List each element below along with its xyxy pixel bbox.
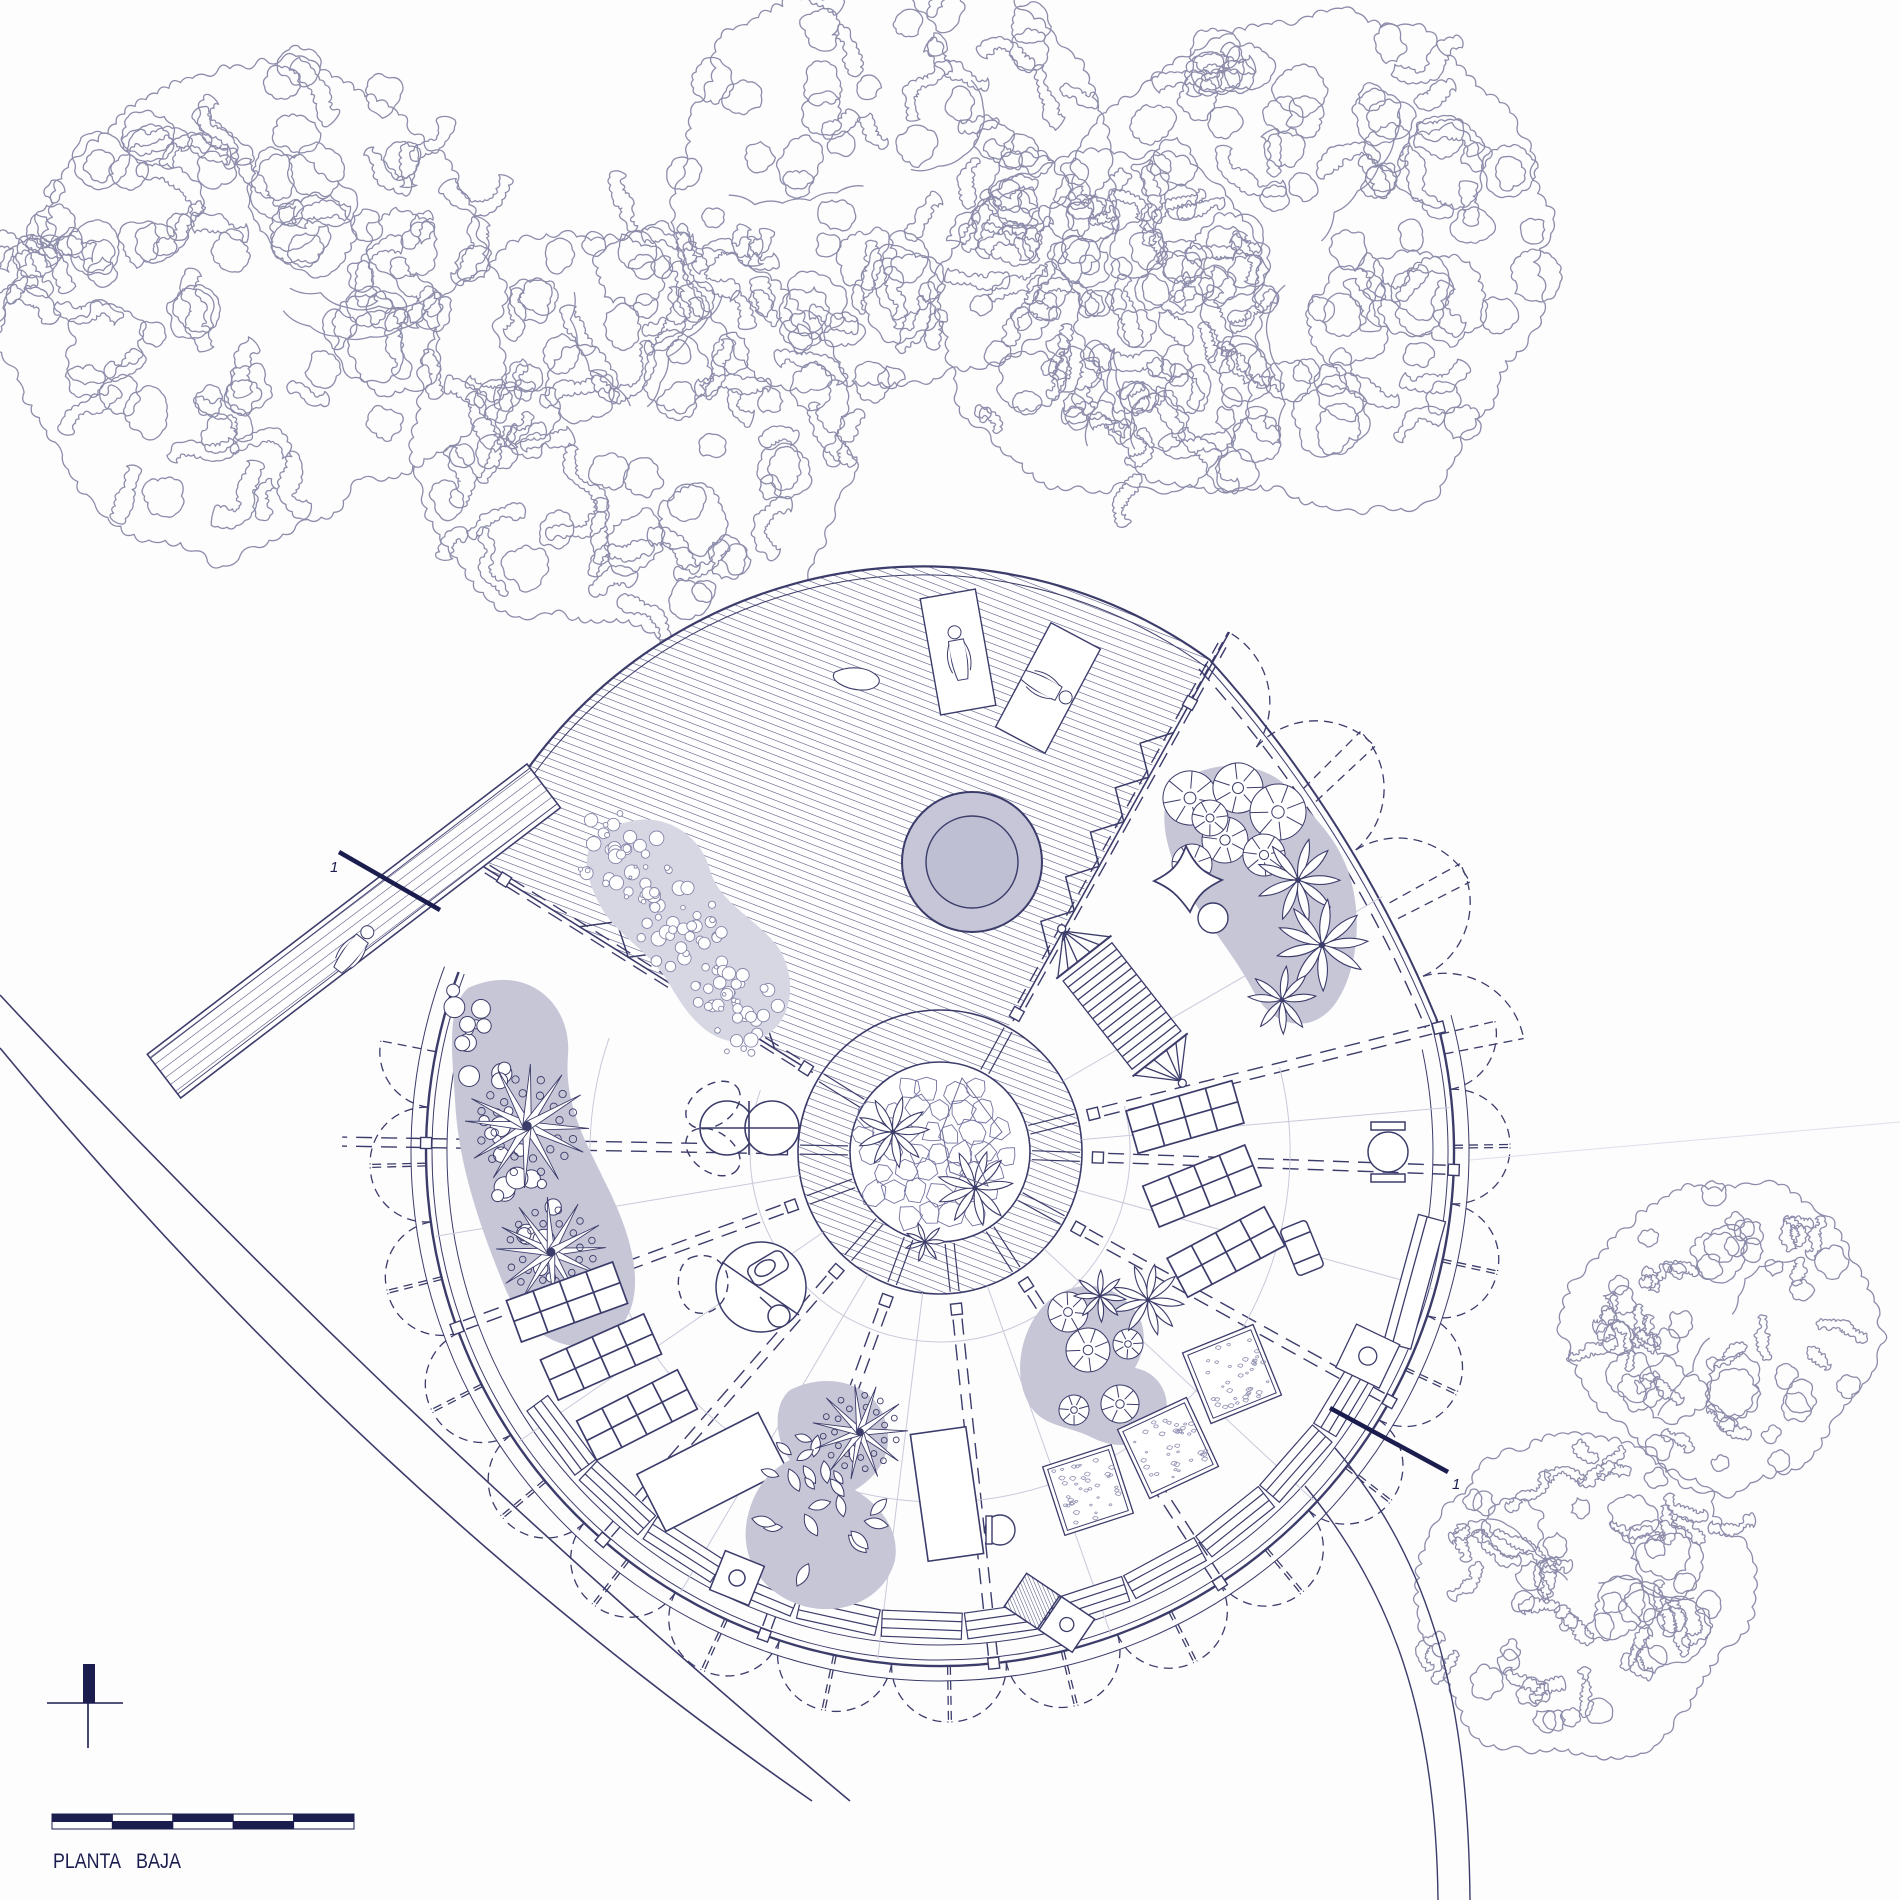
svg-text:1: 1 xyxy=(330,859,338,876)
svg-text:1: 1 xyxy=(1452,1476,1460,1493)
svg-text:BAJA: BAJA xyxy=(136,1850,181,1873)
svg-text:PLANTA: PLANTA xyxy=(53,1850,121,1873)
